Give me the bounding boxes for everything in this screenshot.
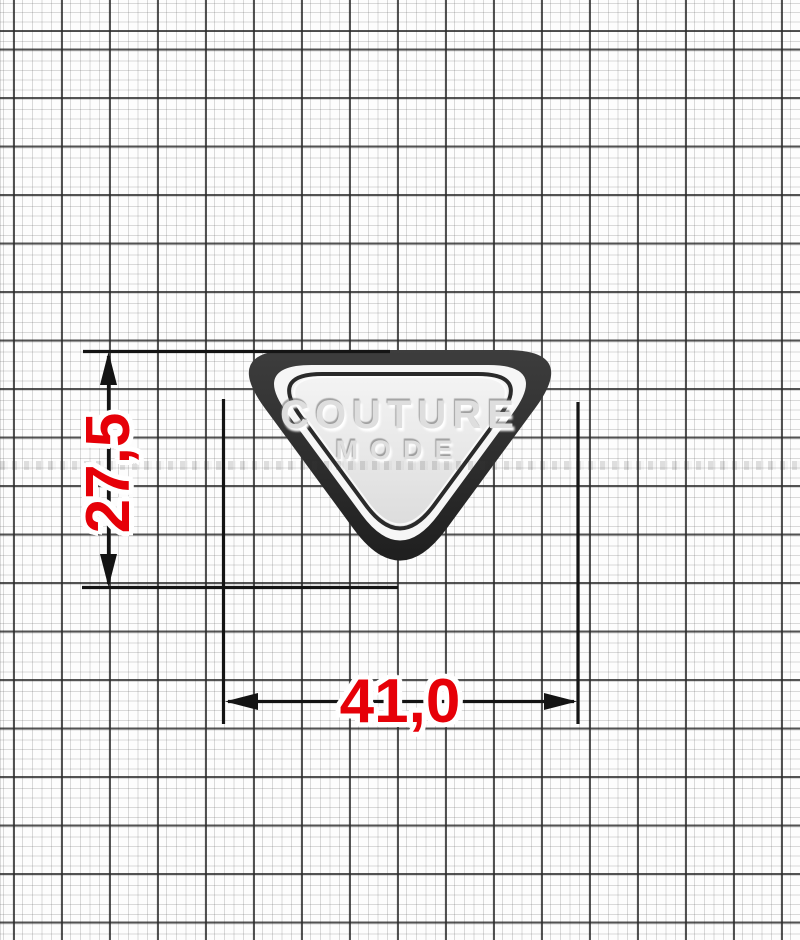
technical-drawing-canvas: COUTURE MODE 27,5 41,0 bbox=[0, 0, 800, 940]
height-dimension-value: 27,5 bbox=[77, 380, 141, 566]
width-dimension-value: 41,0 bbox=[250, 668, 550, 736]
